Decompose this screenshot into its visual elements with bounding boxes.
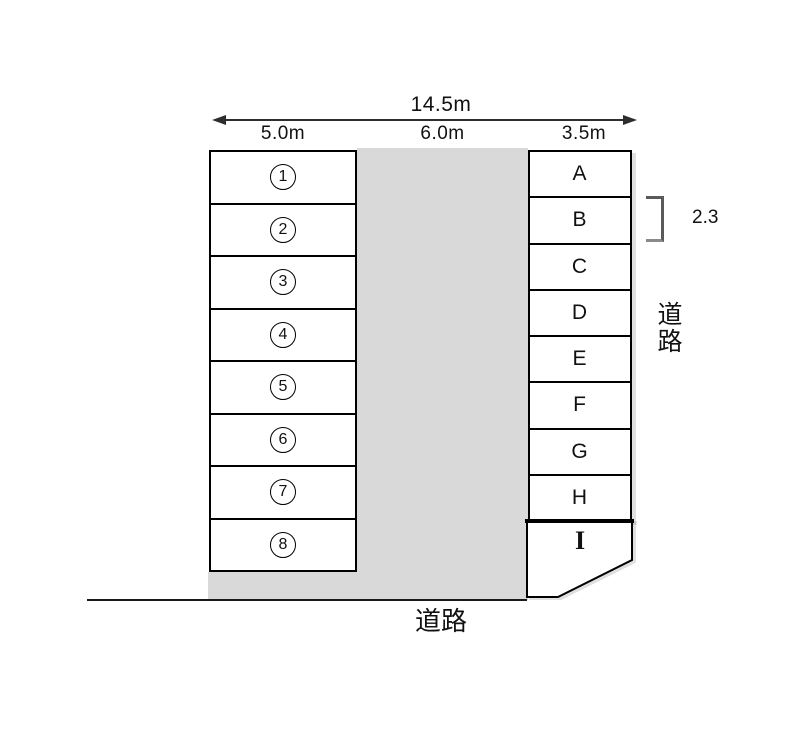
right-stall-column: A B C D E F G H bbox=[528, 150, 632, 522]
stall-G: G bbox=[530, 430, 630, 476]
driveway-width-label: 6.0m bbox=[357, 123, 528, 145]
stall-letter: D bbox=[572, 301, 588, 325]
stall-8: 8 bbox=[211, 520, 355, 571]
stall-letter: G bbox=[571, 440, 588, 464]
road-label-bottom: 道路 bbox=[381, 601, 501, 638]
stall-letter: A bbox=[572, 162, 587, 186]
stall-letter: C bbox=[572, 255, 588, 279]
stall-2: 2 bbox=[211, 205, 355, 258]
driveway-area bbox=[357, 148, 528, 600]
stall-B: B bbox=[530, 198, 630, 244]
left-stall-column: 1 2 3 4 5 6 7 8 bbox=[209, 150, 357, 572]
stall-I-letter: I bbox=[528, 526, 632, 556]
left-width-label: 5.0m bbox=[209, 123, 357, 145]
dimension-arrow-line bbox=[216, 119, 633, 121]
stall-H: H bbox=[530, 476, 630, 520]
stall-letter: E bbox=[572, 347, 587, 371]
stall-4: 4 bbox=[211, 310, 355, 363]
stall-E: E bbox=[530, 337, 630, 383]
circled-number: 2 bbox=[270, 217, 296, 243]
depth-label: 2.3 bbox=[692, 207, 718, 229]
stall-D: D bbox=[530, 291, 630, 337]
parking-layout-diagram: 14.5m 5.0m 6.0m 3.5m 1 2 3 4 5 6 7 8 A B… bbox=[0, 0, 800, 729]
stall-1: 1 bbox=[211, 152, 355, 205]
circled-number: 5 bbox=[270, 374, 296, 400]
circled-number: 7 bbox=[270, 479, 296, 505]
stall-letter: F bbox=[573, 393, 587, 417]
stall-C: C bbox=[530, 245, 630, 291]
stall-F: F bbox=[530, 383, 630, 429]
stall-3: 3 bbox=[211, 257, 355, 310]
circled-number: 4 bbox=[270, 322, 296, 348]
stall-letter: H bbox=[572, 486, 588, 510]
circled-number: 6 bbox=[270, 427, 296, 453]
total-width-label: 14.5m bbox=[381, 93, 501, 117]
right-width-label: 3.5m bbox=[528, 123, 640, 145]
circled-number: 8 bbox=[270, 532, 296, 558]
stall-A: A bbox=[530, 152, 630, 198]
stall-7: 7 bbox=[211, 467, 355, 520]
stall-5: 5 bbox=[211, 362, 355, 415]
circled-number: 3 bbox=[270, 269, 296, 295]
stall-letter: B bbox=[572, 208, 587, 232]
road-label-right: 道路 bbox=[652, 301, 682, 355]
driveway-area-bottom bbox=[208, 572, 357, 600]
depth-bracket-icon bbox=[646, 196, 664, 242]
stall-6: 6 bbox=[211, 415, 355, 468]
circled-number: 1 bbox=[270, 164, 296, 190]
